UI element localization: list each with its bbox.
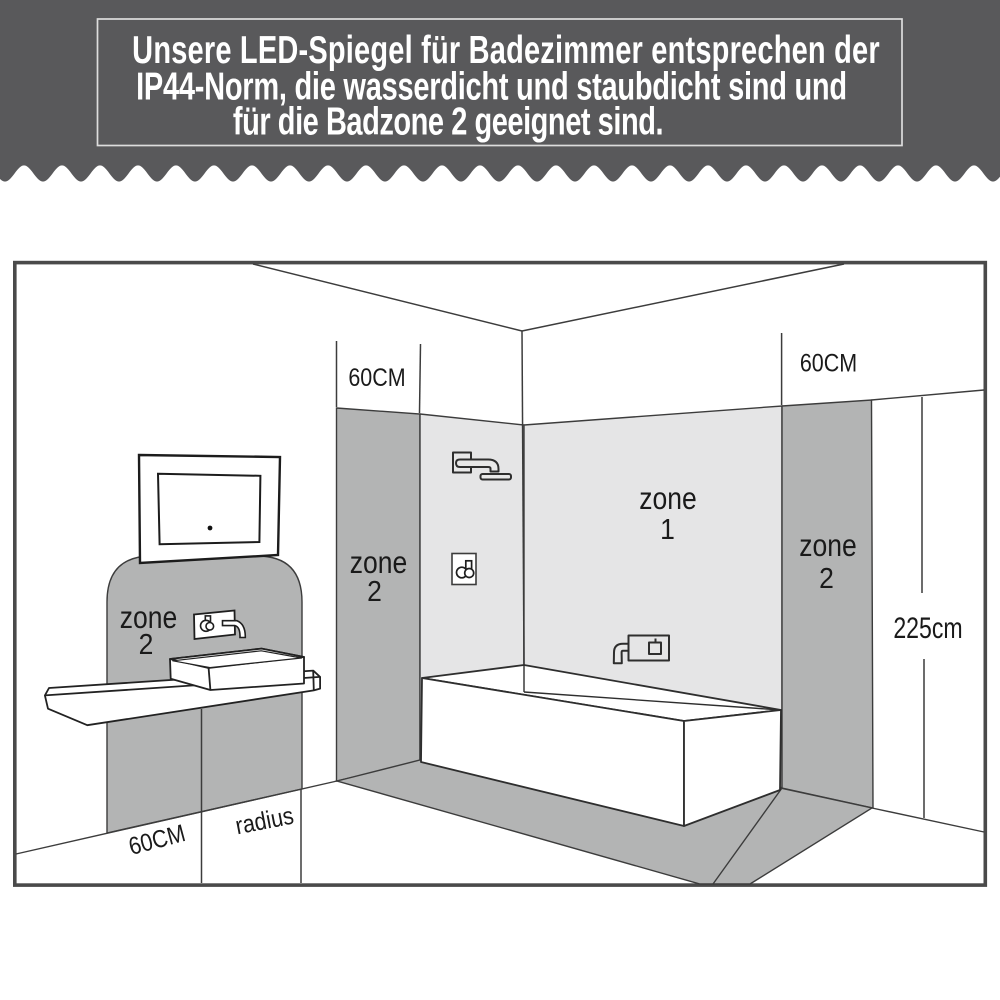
svg-text:2: 2: [139, 628, 154, 660]
svg-text:2: 2: [367, 575, 382, 607]
svg-text:60CM: 60CM: [800, 349, 857, 377]
svg-text:zone: zone: [799, 529, 856, 563]
svg-text:zone: zone: [639, 482, 696, 516]
svg-text:2: 2: [819, 562, 834, 594]
svg-text:1: 1: [660, 513, 675, 545]
svg-text:225cm: 225cm: [893, 611, 962, 645]
svg-text:60CM: 60CM: [348, 364, 405, 392]
svg-text:für die Badzone 2 geeignet sin: für die Badzone 2 geeignet sind.: [233, 101, 663, 144]
